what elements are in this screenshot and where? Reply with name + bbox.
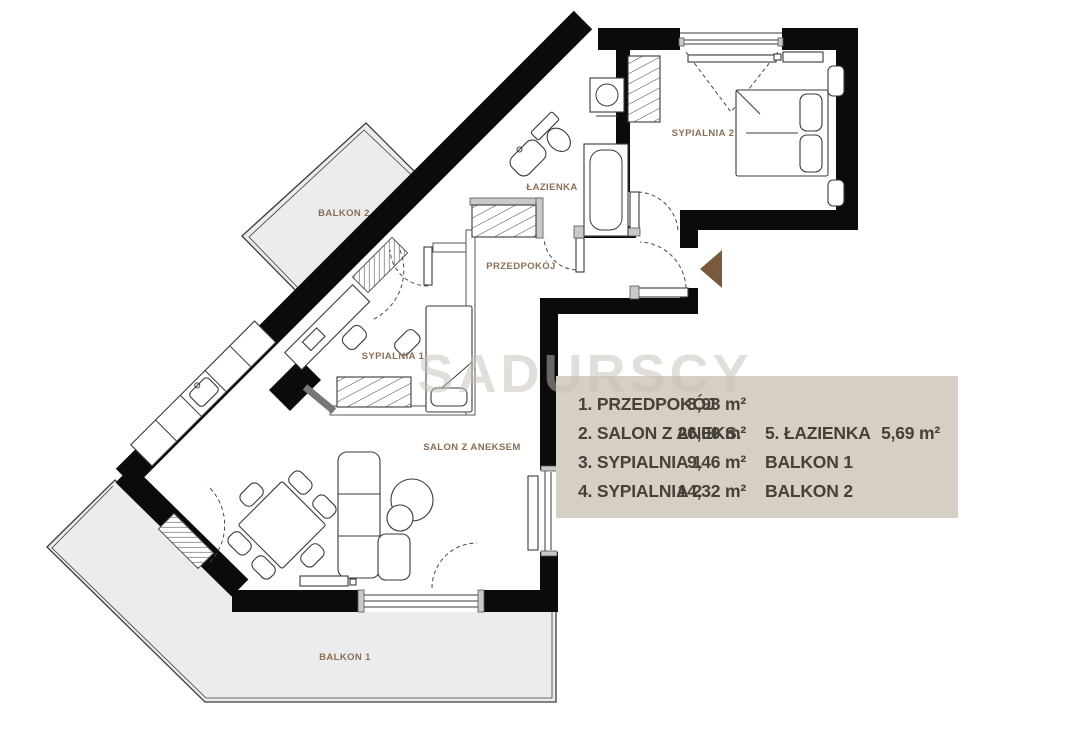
- floor-plan-page: SYPIALNIA 2 ŁAZIENKA PRZEDPOKÓJ SYPIALNI…: [0, 0, 1077, 748]
- kitchen-counter: [131, 321, 276, 466]
- shelf: [783, 52, 823, 62]
- nightstand: [828, 180, 844, 206]
- radiator: [688, 55, 776, 62]
- door-swing: [432, 543, 477, 588]
- floor-plan-canvas: SYPIALNIA 2 ŁAZIENKA PRZEDPOKÓJ SYPIALNI…: [0, 0, 1077, 748]
- legend-item-balkon1: BALKON 1: [765, 452, 853, 472]
- tv-stand: [300, 576, 356, 586]
- room-label-sypialnia2: SYPIALNIA 2: [672, 128, 735, 139]
- room-label-sypialnia1: SYPIALNIA 1: [362, 351, 425, 362]
- washing-machine: [590, 78, 624, 116]
- legend-area-sypialnia2: 14,32 m²: [678, 481, 747, 501]
- room-label-przedpokoj: PRZEDPOKÓJ: [486, 260, 555, 272]
- entrance-arrow-icon: [700, 250, 722, 288]
- entrance-door: [630, 242, 688, 299]
- furniture-przedpokoj: [472, 205, 536, 237]
- radiator: [528, 476, 538, 550]
- room-label-balkon2: BALKON 2: [318, 208, 370, 219]
- legend-item-balkon2: BALKON 2: [765, 481, 853, 501]
- room-label-balkon1: BALKON 1: [319, 652, 371, 663]
- pillow: [800, 94, 822, 131]
- legend-area-salon: 26,00 m²: [678, 423, 747, 443]
- window-salon-right: [528, 466, 558, 556]
- chaise: [378, 534, 410, 580]
- door-sypialnia2: [628, 192, 678, 236]
- legend-area-sypialnia1: 9,46 m²: [687, 452, 746, 472]
- nightstand: [828, 66, 844, 96]
- watermark-text: SADURSCY: [417, 344, 752, 404]
- bathtub: [584, 144, 628, 236]
- pillow: [800, 135, 822, 172]
- room-label-salon: SALON Z ANEKSEM: [423, 442, 520, 453]
- furniture-sypialnia2: [628, 52, 844, 206]
- legend-area-lazienka: 5,69 m²: [881, 423, 940, 443]
- footstool: [387, 505, 413, 531]
- legend-item-sypialnia1: 3. SYPIALNIA 1: [578, 452, 702, 472]
- room-label-lazienka: ŁAZIENKA: [526, 182, 577, 193]
- sink: [505, 135, 549, 179]
- legend-item-lazienka: 5. ŁAZIENKA: [765, 423, 871, 443]
